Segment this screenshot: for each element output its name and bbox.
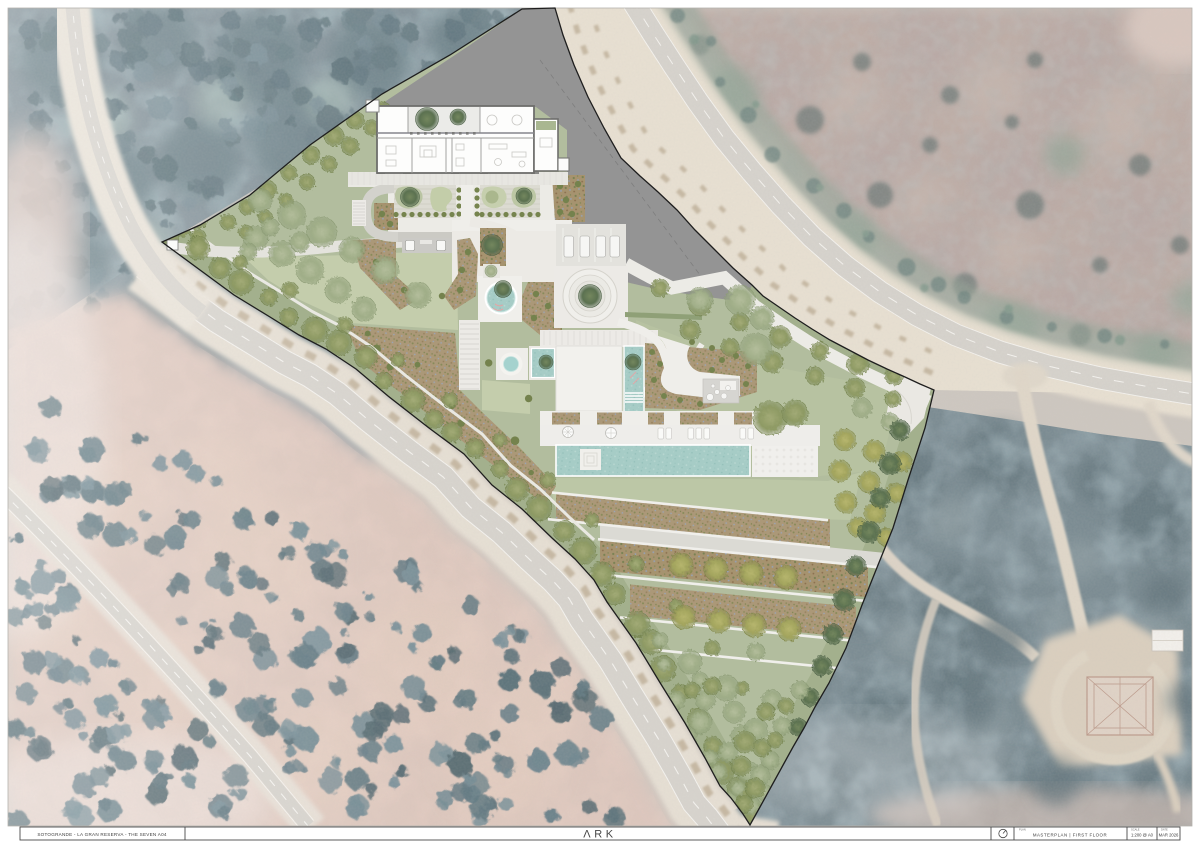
svg-text:MASTERPLAN | FIRST FLOOR: MASTERPLAN | FIRST FLOOR: [1033, 833, 1107, 838]
svg-text:PLAN: PLAN: [1019, 828, 1026, 832]
svg-text:1:200 @ A0: 1:200 @ A0: [1131, 833, 1154, 838]
svg-text:SOTOGRANDE - LA GRAN RESERVA -: SOTOGRANDE - LA GRAN RESERVA - THE SEVEN…: [37, 832, 167, 837]
svg-text:SCALE: SCALE: [1131, 828, 1140, 832]
svg-text:DATE: DATE: [1161, 828, 1168, 832]
svg-text:ΛRK: ΛRK: [583, 829, 616, 841]
svg-text:MAR 2026: MAR 2026: [1159, 833, 1179, 838]
